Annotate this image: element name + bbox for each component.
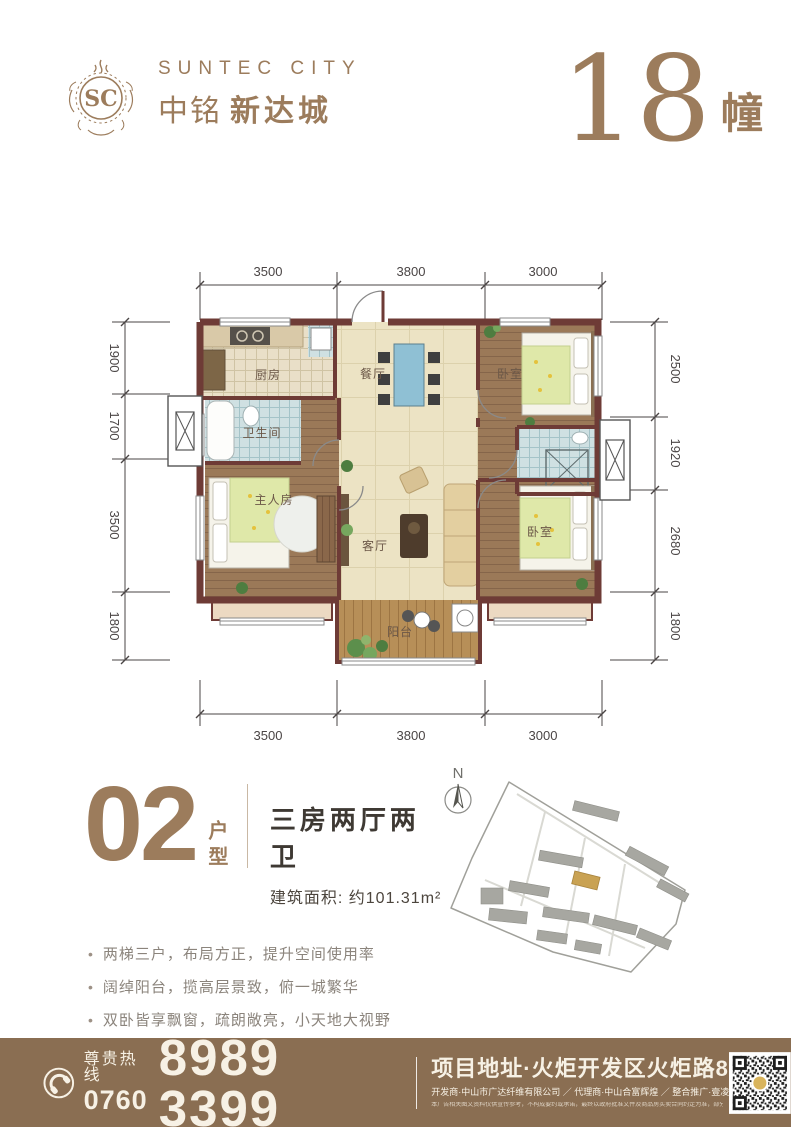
brand-name: SUNTEC CITY 中铭新达城 [158, 58, 362, 130]
svg-text:3800: 3800 [397, 728, 426, 743]
developer-credits: 开发商·中山市广达纤维有限公司 ／ 代理商·中山合富辉煌 ／ 整合推广·壹凌壹广… [431, 1088, 723, 1097]
svg-text:1920: 1920 [668, 439, 683, 468]
label-kitchen: 厨房 [255, 367, 281, 382]
hotline-number: 8989 3399 [159, 1032, 401, 1127]
svg-text:3000: 3000 [529, 728, 558, 743]
svg-text:3500: 3500 [107, 511, 122, 540]
svg-text:1700: 1700 [107, 412, 122, 441]
building-number-value: 18 [561, 30, 711, 168]
footer-bar: 尊贵热线 0760 8989 3399 项目地址·火炬开发区火炬路8号 开发商·… [0, 1038, 791, 1127]
feature-item: 阔绰阳台，揽高层景致，俯一城繁华 [88, 971, 444, 1004]
brand-name-en: SUNTEC CITY [158, 58, 362, 80]
unit-number-suffix: 户型 [202, 820, 231, 872]
unit-number: 02 [84, 778, 196, 871]
unit-info: 02 户型 三房两厅两卫 建筑面积: 约101.31m² 两梯三户，布局方正，提… [84, 778, 444, 1070]
svg-text:3000: 3000 [529, 264, 558, 279]
compass-icon: N [445, 765, 471, 813]
label-bedroom-bottom: 卧室 [527, 524, 553, 539]
svg-text:2680: 2680 [668, 527, 683, 556]
building-number: 18幢 [561, 40, 763, 158]
flyer-page: SC SUNTEC CITY 中铭新达城 18幢 [0, 0, 791, 1127]
feature-item: 两梯三户，布局方正，提升空间使用率 [88, 938, 444, 971]
phone-icon [42, 1065, 76, 1101]
brand-emblem-icon: SC [58, 48, 144, 140]
siteplan: N [425, 760, 755, 1018]
svg-text:SC: SC [84, 86, 117, 112]
hotline: 尊贵热线 0760 8989 3399 [42, 1032, 400, 1127]
divider [416, 1057, 417, 1109]
svg-text:1900: 1900 [107, 344, 122, 373]
building-number-unit: 幢 [721, 90, 763, 137]
legal-disclaimer: 本广告相关图文资料仅供宣传参考，不构成要约或承诺，最终以政府批准文件及商品房买卖… [431, 1102, 723, 1108]
brand-name-cn: 中铭新达城 [158, 86, 362, 130]
label-living: 客厅 [362, 538, 388, 553]
label-balcony: 阳台 [387, 624, 413, 639]
svg-text:1800: 1800 [668, 612, 683, 641]
label-dining: 餐厅 [360, 366, 386, 381]
hotline-label: 尊贵热线 [84, 1052, 151, 1084]
unit-area: 建筑面积: 约101.31m² [270, 884, 444, 908]
svg-text:3800: 3800 [397, 264, 426, 279]
label-bedroom-top: 卧室 [497, 366, 523, 381]
label-master: 主人房 [254, 492, 293, 507]
svg-text:3500: 3500 [254, 728, 283, 743]
svg-text:3500: 3500 [254, 264, 283, 279]
divider [247, 784, 248, 868]
hotline-area-code: 0760 [84, 1087, 151, 1114]
label-bath-main: 卫生间 [242, 426, 281, 440]
qr-code [729, 1050, 791, 1116]
svg-text:N: N [453, 765, 464, 782]
floorplan: 3500 3800 3000 3500 3800 3000 1900 1700 … [70, 228, 730, 758]
brand-logo: SC SUNTEC CITY 中铭新达城 [58, 48, 362, 140]
project-address: 项目地址·火炬开发区火炬路8号 [431, 1058, 723, 1080]
svg-text:1800: 1800 [107, 612, 122, 641]
project-address-block: 项目地址·火炬开发区火炬路8号 开发商·中山市广达纤维有限公司 ／ 代理商·中山… [431, 1058, 723, 1108]
unit-layout: 三房两厅两卫 [270, 800, 444, 874]
svg-text:2500: 2500 [668, 355, 683, 384]
